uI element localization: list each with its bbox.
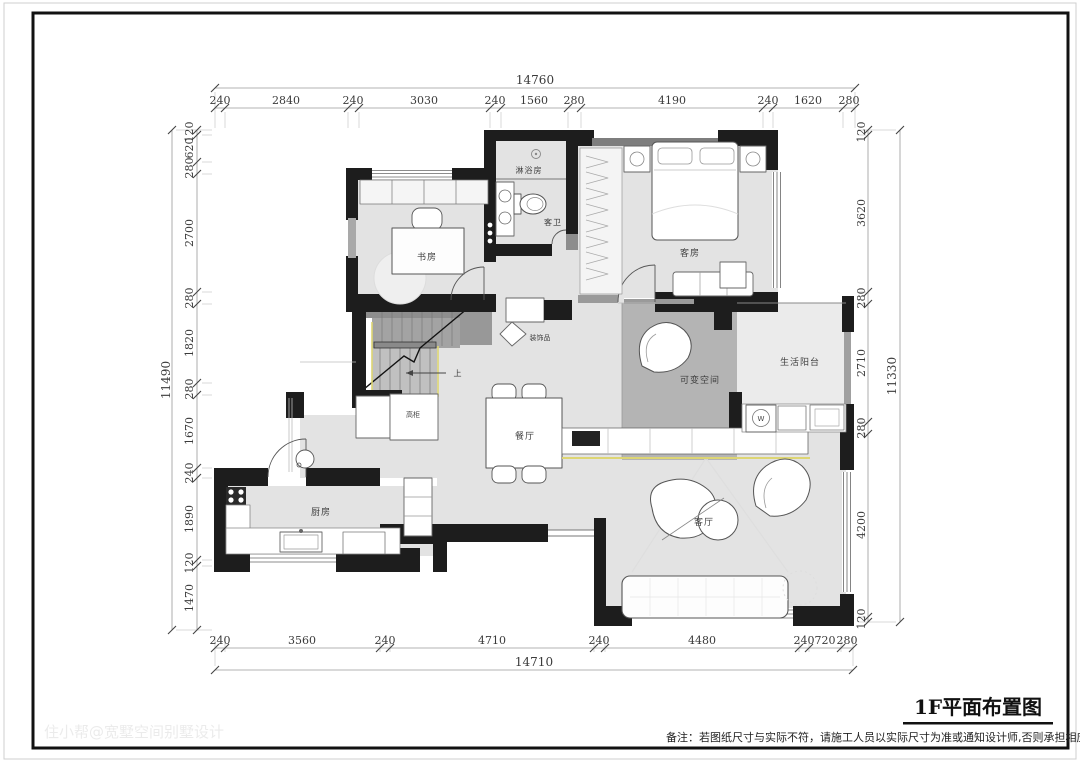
- svg-text:3560: 3560: [288, 634, 316, 647]
- guest-side-table: [720, 262, 746, 288]
- entry-table: [296, 450, 314, 468]
- svg-text:240: 240: [343, 94, 364, 107]
- svg-text:620: 620: [183, 138, 196, 159]
- drawing-note: 备注：若图纸尺寸与实际不符，请施工人员以实际尺寸为准或通知设计师,否则承担相应责…: [666, 730, 1080, 744]
- kitchen-appliance: [343, 532, 385, 554]
- title-underline: [903, 722, 1053, 725]
- svg-text:1820: 1820: [183, 329, 196, 357]
- svg-text:4480: 4480: [688, 634, 716, 647]
- dim-bottom: 240 3560 240 4710 240 4480 240 720 280 1…: [210, 634, 858, 669]
- svg-text:280: 280: [183, 158, 196, 179]
- label-stair-up: 上: [454, 369, 463, 378]
- label-service-balcony: 生活阳台: [780, 356, 820, 368]
- svg-text:720: 720: [815, 634, 836, 647]
- dining-chair: [492, 466, 516, 483]
- dim-top-total: 14760: [516, 73, 554, 87]
- svg-text:280: 280: [183, 288, 196, 309]
- svg-text:2710: 2710: [855, 349, 868, 377]
- svg-text:4710: 4710: [478, 634, 506, 647]
- label-washer: W: [758, 415, 765, 423]
- label-guest-bathroom: 客卫: [544, 217, 562, 227]
- stove: [226, 487, 246, 505]
- study-chair: [412, 208, 442, 230]
- svg-text:120: 120: [855, 609, 868, 630]
- svg-text:120: 120: [183, 553, 196, 574]
- floor-plan-canvas: 书房 淋浴房 客卫 客房 可变空间 生活阳台 餐厅 厨房 客厅 装饰品 高柜 上…: [0, 0, 1080, 764]
- svg-text:280: 280: [855, 288, 868, 309]
- svg-text:240: 240: [210, 634, 231, 647]
- svg-text:4190: 4190: [658, 94, 686, 107]
- svg-text:3030: 3030: [410, 94, 438, 107]
- label-living-room: 客厅: [694, 516, 714, 528]
- label-kitchen: 厨房: [311, 506, 331, 518]
- kitchen-tall-cabinet: [404, 478, 432, 536]
- nightstand-right: [740, 146, 766, 172]
- watermark: 住小帮@宽墅空间别墅设计: [44, 723, 224, 741]
- label-shower-room: 淋浴房: [516, 165, 543, 175]
- svg-text:1470: 1470: [183, 584, 196, 612]
- svg-text:240: 240: [210, 94, 231, 107]
- svg-text:240: 240: [375, 634, 396, 647]
- svg-text:2700: 2700: [183, 219, 196, 247]
- nightstand-left: [624, 146, 650, 172]
- svg-text:240: 240: [183, 463, 196, 484]
- stair-bench: [356, 396, 390, 438]
- title-block: 1F平面布置图 备注：若图纸尺寸与实际不符，请施工人员以实际尺寸为准或通知设计师…: [666, 695, 1080, 744]
- svg-text:120: 120: [855, 122, 868, 143]
- svg-text:1890: 1890: [183, 505, 196, 533]
- svg-text:1670: 1670: [183, 417, 196, 445]
- svg-text:240: 240: [758, 94, 779, 107]
- label-decoration: 装饰品: [530, 333, 551, 342]
- toilet: [520, 194, 546, 214]
- drawing-title: 1F平面布置图: [914, 695, 1042, 719]
- svg-text:240: 240: [589, 634, 610, 647]
- dim-top: 14760 240 2840 240 3030 240 1560 280 419…: [210, 73, 860, 107]
- label-study: 书房: [417, 251, 437, 263]
- dining-chair: [522, 466, 546, 483]
- study-desk: [392, 228, 464, 274]
- dim-left-total: 11490: [159, 361, 173, 399]
- label-tall-cabinet: 高柜: [406, 410, 420, 419]
- svg-text:1560: 1560: [520, 94, 548, 107]
- label-dining-room: 餐厅: [515, 430, 535, 442]
- svg-text:4200: 4200: [855, 511, 868, 539]
- floor-plan-sheet: 书房 淋浴房 客卫 客房 可变空间 生活阳台 餐厅 厨房 客厅 装饰品 高柜 上…: [0, 0, 1080, 764]
- svg-text:3620: 3620: [855, 199, 868, 227]
- svg-text:280: 280: [837, 634, 858, 647]
- svg-text:280: 280: [564, 94, 585, 107]
- svg-text:2840: 2840: [272, 94, 300, 107]
- dim-right: 120 3620 280 2710 280 4200 120 11330: [855, 122, 899, 630]
- svg-text:240: 240: [794, 634, 815, 647]
- svg-text:240: 240: [485, 94, 506, 107]
- label-flex-space: 可变空间: [680, 374, 720, 386]
- sideboard-accent: [572, 431, 600, 446]
- svg-text:280: 280: [839, 94, 860, 107]
- balcony-cabinet: [778, 406, 806, 430]
- dim-right-total: 11330: [885, 357, 899, 395]
- svg-text:280: 280: [183, 379, 196, 400]
- dim-left: 11490 120 620 280 2700 280 1820 280 1670…: [159, 122, 196, 613]
- label-guest-bedroom: 客房: [680, 247, 700, 259]
- dim-bottom-total: 14710: [515, 655, 553, 669]
- svg-text:280: 280: [855, 418, 868, 439]
- svg-text:1620: 1620: [794, 94, 822, 107]
